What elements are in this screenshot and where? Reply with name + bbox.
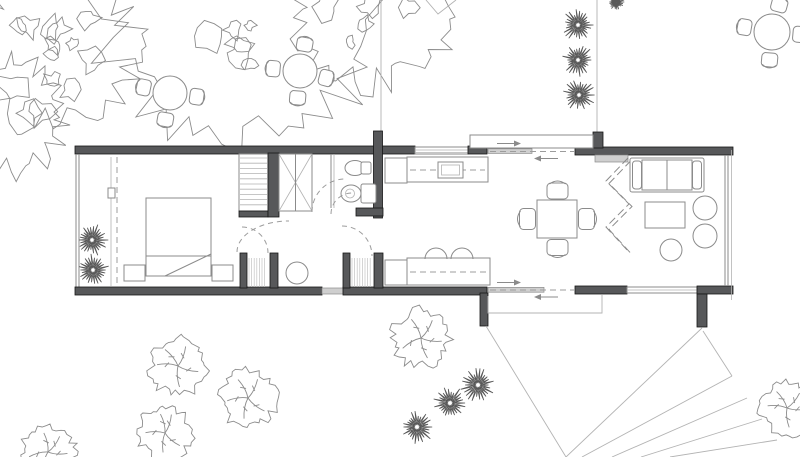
shrub xyxy=(403,411,432,444)
sofa-armrest xyxy=(693,161,702,189)
curtain-pull xyxy=(108,188,115,198)
kitchen-window xyxy=(415,147,468,154)
bathroom-wall-south xyxy=(356,208,383,216)
shrub xyxy=(563,81,594,109)
nightstand-left xyxy=(124,265,145,281)
tall-cabinet[interactable] xyxy=(385,158,407,183)
tree-canopy xyxy=(0,51,70,181)
arrow-icon xyxy=(514,280,521,286)
outdoor-table[interactable] xyxy=(153,76,187,110)
floor-plan-canvas: Single-storey house floor plan with land… xyxy=(0,0,800,457)
arrow-icon xyxy=(534,156,541,162)
wall-terrace-east xyxy=(697,294,707,327)
outdoor-tables xyxy=(134,0,800,129)
tree-canopy xyxy=(82,0,383,154)
wall-stub-up-east xyxy=(593,132,603,148)
tree xyxy=(218,366,280,427)
tree-canopy xyxy=(0,0,148,135)
closet-wall xyxy=(240,253,247,288)
closet-hatch-right xyxy=(352,258,370,287)
outdoor-table[interactable] xyxy=(754,14,790,50)
stair-tread xyxy=(582,376,732,457)
outdoor-chair[interactable] xyxy=(289,90,306,106)
wall-bathroom-kitchen xyxy=(374,131,383,218)
shrub xyxy=(79,225,108,256)
wall-bottom-east xyxy=(575,286,627,294)
closet-hatch-left xyxy=(249,258,265,287)
closet-wall xyxy=(343,253,350,288)
closet-strip xyxy=(240,253,383,288)
wall-bottom-west xyxy=(75,287,322,295)
shrub xyxy=(609,0,624,10)
stool[interactable] xyxy=(425,248,447,259)
dining-chair[interactable] xyxy=(547,240,568,258)
outdoor-table-set xyxy=(134,76,206,129)
sofa-armrest xyxy=(633,161,642,189)
door-swing-bedroom xyxy=(237,221,289,252)
closet-wall xyxy=(374,253,383,288)
nightstand-right xyxy=(212,265,233,281)
tree xyxy=(21,424,78,457)
outdoor-table-set xyxy=(264,35,335,106)
wall-corner-se xyxy=(697,286,733,294)
laundry-drum[interactable] xyxy=(286,262,308,284)
sofa-cushion xyxy=(642,160,667,190)
dining-chair[interactable] xyxy=(518,209,536,230)
pouf[interactable] xyxy=(693,224,717,248)
kitchen-island[interactable] xyxy=(407,258,490,285)
toilet-tank xyxy=(361,184,376,203)
tree xyxy=(137,406,195,457)
wall-under-stairs xyxy=(239,211,268,217)
door-swing-closet-left xyxy=(242,227,268,253)
terrace-step xyxy=(488,295,602,313)
pouf[interactable] xyxy=(693,196,717,220)
tree xyxy=(757,379,800,438)
closet-wall xyxy=(270,253,278,288)
living-area: Living area with sofa, coffee table, pou… xyxy=(595,155,717,261)
path-edge-east xyxy=(566,328,702,457)
stair-edge xyxy=(703,331,732,376)
outdoor-chair[interactable] xyxy=(296,35,314,53)
shrub xyxy=(79,254,109,284)
wall-stair-wardrobe xyxy=(268,153,279,217)
outdoor-table-set xyxy=(735,0,800,69)
terrace: South terrace with step and diagonal sta… xyxy=(486,295,777,457)
outdoor-chair[interactable] xyxy=(156,111,174,129)
wall-bottom-mid xyxy=(343,287,487,295)
shrub xyxy=(434,388,466,416)
outdoor-chair[interactable] xyxy=(189,88,206,106)
outdoor-chair[interactable] xyxy=(264,60,280,77)
double-bed xyxy=(146,198,211,276)
site-boundary-lines xyxy=(381,0,597,132)
sliding-door-pocket xyxy=(470,135,593,148)
wall-top-west xyxy=(75,146,415,154)
outdoor-chair[interactable] xyxy=(770,0,789,14)
floor-plan-page: Single-storey house floor plan with land… xyxy=(0,0,800,457)
pouf[interactable] xyxy=(660,239,682,261)
outdoor-chair[interactable] xyxy=(735,18,753,36)
dining-chair[interactable] xyxy=(579,209,597,230)
outdoor-chair[interactable] xyxy=(317,68,336,87)
shrub xyxy=(563,46,592,76)
house: Elongated house volume xyxy=(75,131,777,457)
folding-partition[interactable] xyxy=(606,158,629,251)
outdoor-chair[interactable] xyxy=(134,78,152,97)
shrub xyxy=(564,9,594,39)
outdoor-chair[interactable] xyxy=(761,52,778,68)
dining-table[interactable] xyxy=(537,200,577,238)
dining-area: Dining area with square table and four c… xyxy=(518,181,597,258)
arrow-icon xyxy=(534,294,541,300)
stool[interactable] xyxy=(451,248,473,259)
tree xyxy=(147,334,210,395)
kitchen: Kitchen with counter, sink and island wi… xyxy=(385,157,490,285)
sideboard[interactable] xyxy=(595,155,628,162)
dining-chair[interactable] xyxy=(547,181,568,199)
path-edge-west xyxy=(486,326,566,457)
tree xyxy=(390,305,454,368)
outdoor-table[interactable] xyxy=(283,54,317,88)
island-cabinet[interactable] xyxy=(385,260,407,285)
round-trees xyxy=(21,305,800,457)
door-swing-hall xyxy=(312,179,345,212)
bedroom: Bedroom with double bed, nightstands, cu… xyxy=(108,153,312,286)
stair-tread xyxy=(641,419,762,457)
door-swing-closet-right xyxy=(342,226,372,256)
entry-threshold xyxy=(322,288,343,294)
shrub xyxy=(461,368,494,401)
coffee-table[interactable] xyxy=(645,202,685,228)
staircase[interactable] xyxy=(239,154,268,211)
bidet-tank xyxy=(361,162,371,174)
sofa-cushion xyxy=(667,160,692,190)
outdoor-chair[interactable] xyxy=(792,26,800,43)
wall-terrace-west xyxy=(480,293,488,326)
